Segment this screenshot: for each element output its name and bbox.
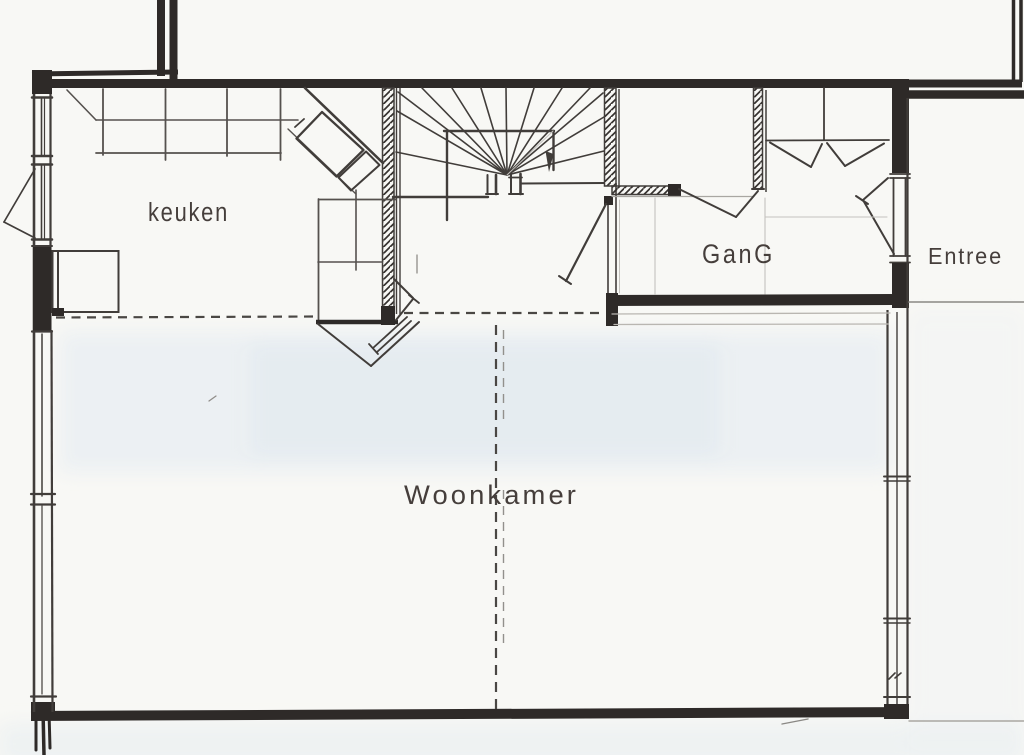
- svg-text:Woonkamer: Woonkamer: [404, 480, 579, 510]
- svg-text:keuken: keuken: [148, 199, 229, 227]
- svg-text:Entree: Entree: [928, 243, 1003, 269]
- svg-text:GanG: GanG: [702, 239, 775, 269]
